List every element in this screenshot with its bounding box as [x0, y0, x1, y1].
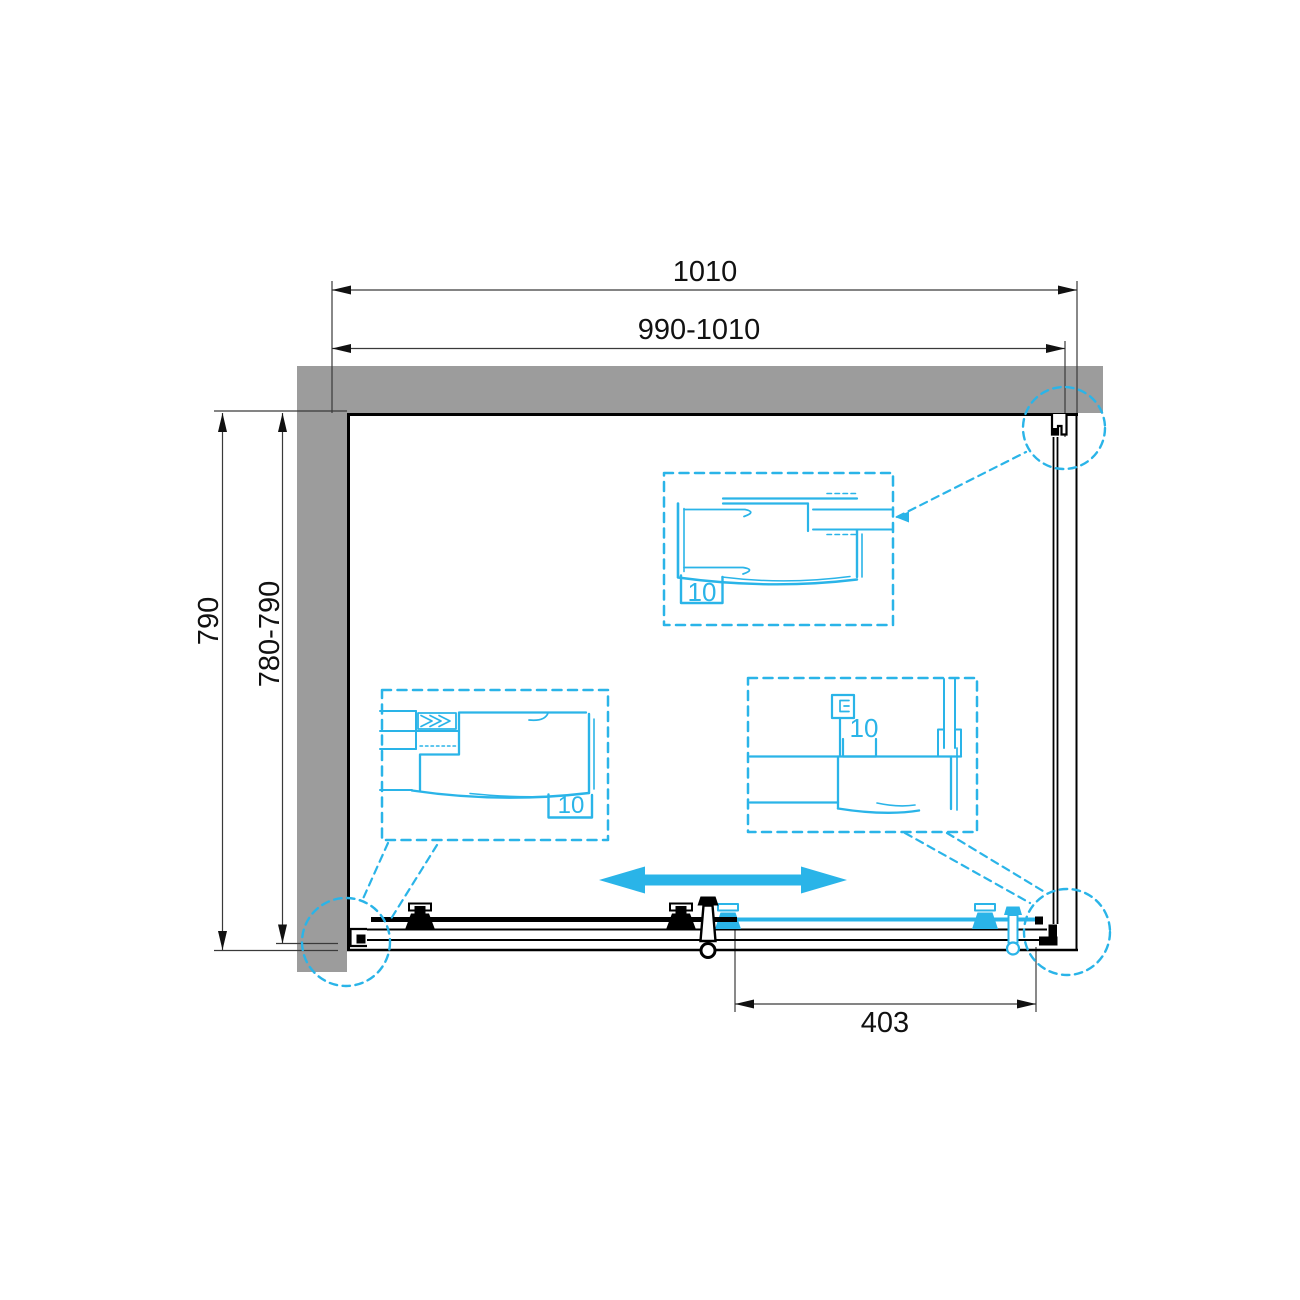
fixed-panel-roller: [715, 904, 741, 929]
dim-label-left-outer: 790: [193, 597, 225, 645]
fixed-panel-roller: [972, 904, 998, 929]
glass-thickness-label-right: 10: [850, 713, 879, 743]
detail-right-profile: 10: [750, 679, 961, 813]
door-roller: [666, 904, 696, 930]
glass-thickness-label-left: 10: [558, 792, 585, 819]
dimension-door-opening: 403: [735, 921, 1036, 1039]
enclosure-outline: [347, 413, 1078, 951]
door-roller: [405, 904, 435, 930]
wall-top: [297, 366, 1103, 413]
detail-top-profile: 10: [678, 494, 893, 608]
detail-circle-bottom-right: [1024, 889, 1110, 975]
glass-thickness-label-top: 10: [688, 577, 717, 607]
dim-label-top-outer: 1010: [673, 256, 738, 288]
detail-callout-left: 10: [380, 690, 608, 840]
slide-direction-arrow-icon: [599, 867, 847, 894]
dim-label-top-range: 990-1010: [638, 314, 761, 346]
detail-left-profile: 10: [380, 711, 594, 819]
dim-label-door-opening: 403: [861, 1007, 909, 1039]
detail-callout-top: 10: [664, 473, 893, 625]
detail-leader-lines: [362, 452, 1043, 922]
wall-left: [297, 366, 347, 972]
shower-enclosure-plan-drawing: 1010 990-1010 790 780-790 403: [0, 0, 1300, 1300]
detail-callout-circles: [302, 387, 1110, 986]
technical-drawing-page: 1010 990-1010 790 780-790 403: [0, 0, 1300, 1300]
detail-callout-right: 10: [748, 678, 977, 832]
wall-profile-bottom-left: [351, 929, 368, 946]
door-handle-knob: [698, 897, 719, 958]
wall-profile-top-right: [1052, 414, 1067, 435]
dim-label-left-range: 780-790: [254, 581, 286, 687]
detail-box-right: [748, 678, 977, 832]
